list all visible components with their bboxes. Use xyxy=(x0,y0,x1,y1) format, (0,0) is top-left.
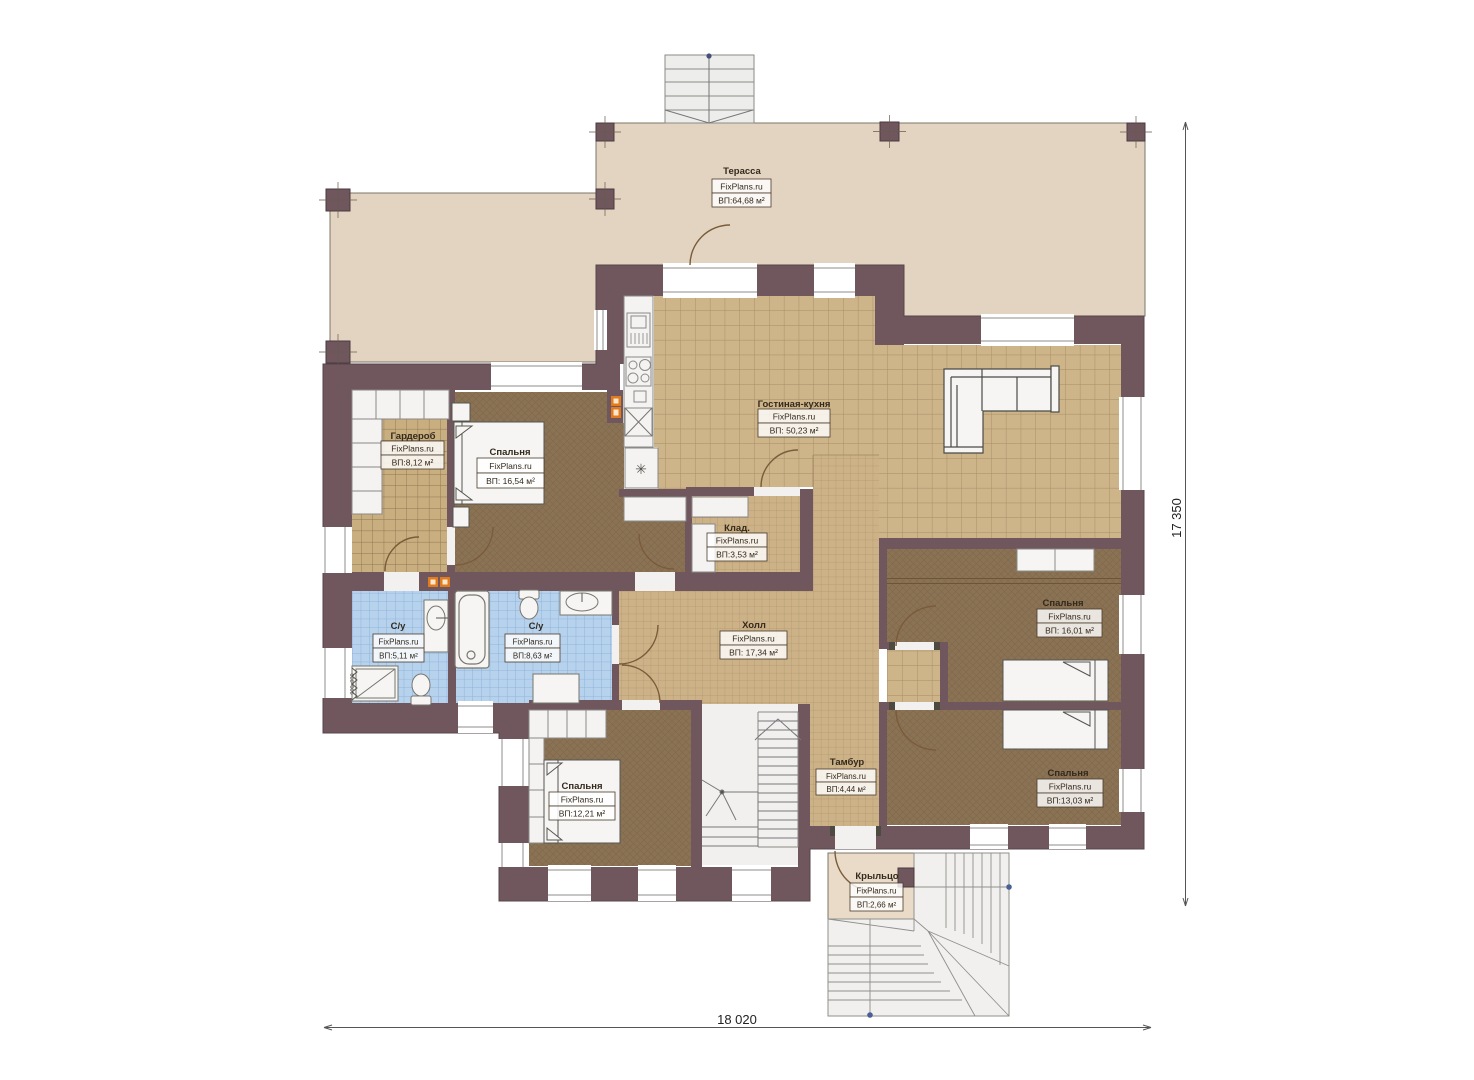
svg-text:ВП: 50,23 м²: ВП: 50,23 м² xyxy=(770,426,819,436)
svg-text:900x900: 900x900 xyxy=(350,673,356,694)
svg-text:ВП:5,11 м²: ВП:5,11 м² xyxy=(379,652,418,661)
svg-text:ВП:13,03 м²: ВП:13,03 м² xyxy=(1047,796,1094,806)
svg-text:FixPlans.ru: FixPlans.ru xyxy=(826,772,866,781)
svg-text:ВП:4,44 м²: ВП:4,44 м² xyxy=(826,785,866,794)
svg-text:С/у: С/у xyxy=(529,621,545,632)
svg-text:FixPlans.ru: FixPlans.ru xyxy=(732,634,775,644)
svg-text:Гардероб: Гардероб xyxy=(391,431,436,442)
svg-text:FixPlans.ru: FixPlans.ru xyxy=(391,444,434,454)
svg-text:ВП: 16,54 м²: ВП: 16,54 м² xyxy=(486,476,535,486)
svg-text:FixPlans.ru: FixPlans.ru xyxy=(773,412,816,422)
svg-text:FixPlans.ru: FixPlans.ru xyxy=(512,638,552,647)
svg-text:FixPlans.ru: FixPlans.ru xyxy=(378,638,418,647)
svg-text:FixPlans.ru: FixPlans.ru xyxy=(1049,782,1092,792)
svg-text:Спальня: Спальня xyxy=(561,781,602,792)
svg-text:18 020: 18 020 xyxy=(717,1012,757,1027)
svg-text:Спальня: Спальня xyxy=(1047,768,1088,779)
svg-text:ВП:64,68 м²: ВП:64,68 м² xyxy=(718,196,765,206)
svg-text:FixPlans.ru: FixPlans.ru xyxy=(1048,612,1091,622)
svg-text:Терасса: Терасса xyxy=(723,166,761,177)
svg-text:Спальня: Спальня xyxy=(1042,598,1083,609)
svg-text:ВП:3,53 м²: ВП:3,53 м² xyxy=(716,550,758,560)
svg-text:17 350: 17 350 xyxy=(1169,498,1184,538)
svg-text:ВП: 16,01 м²: ВП: 16,01 м² xyxy=(1045,626,1094,636)
svg-text:Крыльцо: Крыльцо xyxy=(855,871,898,882)
svg-text:Тамбур: Тамбур xyxy=(830,757,865,768)
svg-text:FixPlans.ru: FixPlans.ru xyxy=(856,887,896,896)
svg-text:ВП:12,21 м²: ВП:12,21 м² xyxy=(559,809,606,819)
svg-text:ВП:2,66 м²: ВП:2,66 м² xyxy=(857,901,897,910)
svg-text:Спальня: Спальня xyxy=(489,447,530,458)
svg-text:Гостиная-кухня: Гостиная-кухня xyxy=(758,399,831,410)
svg-text:FixPlans.ru: FixPlans.ru xyxy=(720,182,763,192)
svg-text:Клад.: Клад. xyxy=(724,523,750,534)
svg-text:FixPlans.ru: FixPlans.ru xyxy=(716,536,759,546)
svg-text:ВП:8,12 м²: ВП:8,12 м² xyxy=(392,458,434,468)
svg-text:✳: ✳ xyxy=(635,461,647,477)
svg-text:FixPlans.ru: FixPlans.ru xyxy=(561,795,604,805)
svg-text:ВП:8,63 м²: ВП:8,63 м² xyxy=(513,652,553,661)
svg-text:ВП: 17,34 м²: ВП: 17,34 м² xyxy=(729,648,778,658)
svg-text:Холл: Холл xyxy=(742,620,766,631)
svg-text:FixPlans.ru: FixPlans.ru xyxy=(489,461,532,471)
svg-text:С/у: С/у xyxy=(391,621,407,632)
